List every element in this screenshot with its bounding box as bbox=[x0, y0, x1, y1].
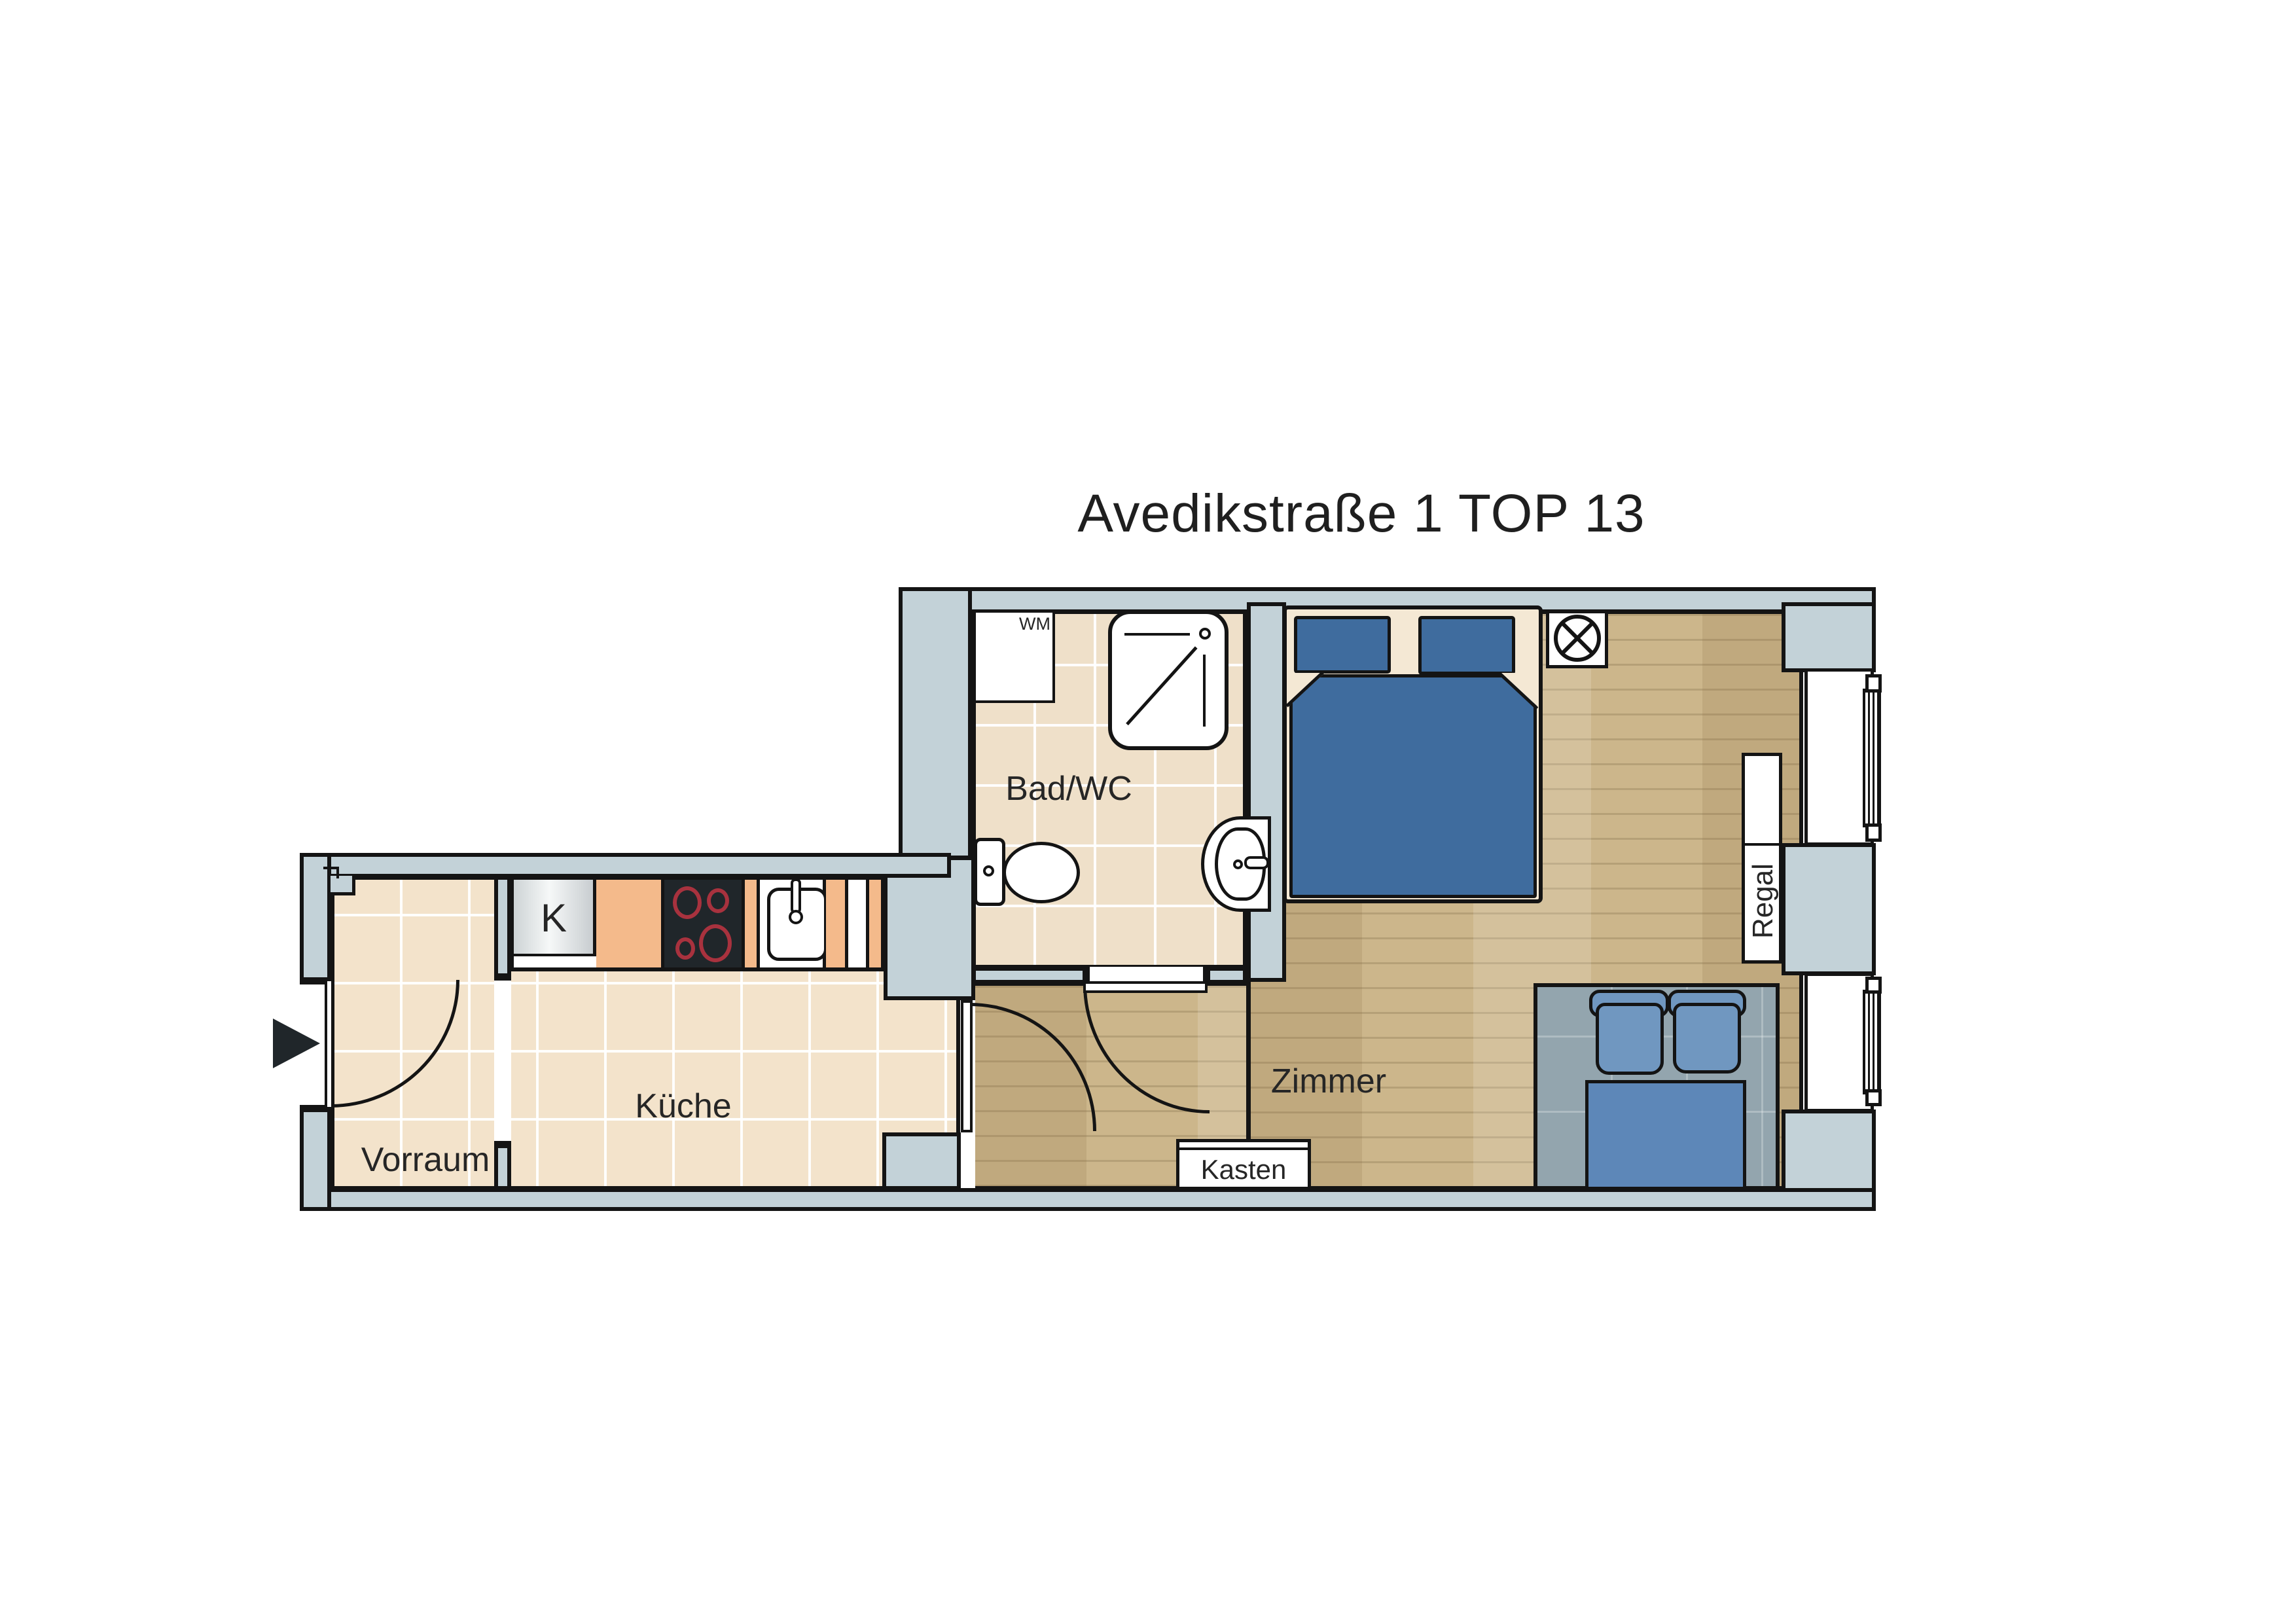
stove-burner bbox=[673, 886, 702, 919]
sofa-seat bbox=[1585, 1080, 1746, 1190]
stove-burner bbox=[707, 888, 729, 913]
bed-duvet bbox=[1289, 674, 1537, 898]
room-label-zimmer: Zimmer bbox=[1230, 1062, 1427, 1101]
shower-detail bbox=[1124, 633, 1190, 636]
wall-hall-kitchen-partition bbox=[494, 876, 511, 977]
window-1-cap-top bbox=[1865, 674, 1882, 693]
wall-mark bbox=[336, 867, 339, 878]
toilet-bowl bbox=[1003, 842, 1080, 903]
wall-window-pier bbox=[1782, 843, 1876, 975]
faucet-icon bbox=[1233, 859, 1243, 869]
stove-burner bbox=[675, 937, 695, 960]
bath-door-leaf bbox=[1083, 981, 1208, 993]
entrance-arrow-icon bbox=[273, 1019, 320, 1068]
room-label-vorraum: Vorraum bbox=[327, 1140, 524, 1180]
page-title: Avedikstraße 1 TOP 13 bbox=[1060, 483, 1662, 545]
counter-segment bbox=[596, 880, 664, 967]
faucet-handle bbox=[1244, 856, 1269, 869]
counter-segment bbox=[869, 880, 881, 967]
room-label-kueche: Küche bbox=[585, 1087, 781, 1126]
shower-drain-icon bbox=[1199, 628, 1211, 640]
wall-pillar-corridor bbox=[884, 856, 975, 1000]
counter-cabinet bbox=[848, 880, 869, 967]
floor-plan: Avedikstraße 1 TOP 13 Regal WM bbox=[0, 0, 2296, 1624]
fridge-label: K bbox=[514, 895, 594, 941]
wardrobe-label: Kasten bbox=[1176, 1154, 1311, 1185]
window-2-cap-top bbox=[1865, 977, 1882, 994]
wall-bath-bottom-right bbox=[1206, 967, 1247, 984]
wall-bottom bbox=[300, 1188, 1876, 1211]
wall-bath-bottom-left bbox=[972, 967, 1086, 984]
radiator-1-icon bbox=[1863, 689, 1881, 827]
kitchen-faucet bbox=[791, 878, 801, 914]
bed-pillow bbox=[1294, 616, 1391, 674]
window-1-cap-bottom bbox=[1865, 823, 1882, 842]
counter-segment bbox=[742, 880, 760, 967]
bed-pillow bbox=[1418, 616, 1515, 675]
wall-bath-room-divider bbox=[1247, 602, 1286, 982]
washing-machine-label: WM bbox=[1001, 614, 1050, 634]
entry-door-leaf bbox=[325, 979, 334, 1110]
shower-detail bbox=[1203, 655, 1206, 727]
wall-notch bbox=[331, 876, 355, 895]
sofa-cushion bbox=[1673, 1003, 1741, 1074]
hall-kitchen-opening bbox=[494, 977, 511, 1144]
wall-entry-left-upper bbox=[300, 853, 331, 981]
shelf-regal-divider bbox=[1744, 843, 1780, 846]
wall-kitchen-corridor-chunk bbox=[882, 1132, 961, 1190]
kitchen-door-leaf bbox=[961, 1000, 973, 1132]
wardrobe-front-line bbox=[1178, 1147, 1309, 1150]
room-label-bad-wc: Bad/WC bbox=[971, 769, 1167, 808]
counter-segment bbox=[826, 880, 848, 967]
wall-entry-left-lower bbox=[300, 1108, 331, 1211]
sofa-cushion bbox=[1596, 1003, 1664, 1075]
wall-left-of-bath bbox=[899, 587, 972, 859]
shelf-regal-label: Regal bbox=[1747, 865, 1777, 939]
kitchen-faucet-base bbox=[789, 910, 803, 924]
window-2-cap-bottom bbox=[1865, 1089, 1882, 1106]
radiator-2-icon bbox=[1863, 990, 1881, 1094]
wall-corner-top-right bbox=[1782, 602, 1876, 672]
wall-kitchen-top bbox=[300, 853, 951, 878]
toilet-flush-icon bbox=[983, 865, 994, 876]
stove-burner bbox=[699, 924, 732, 962]
